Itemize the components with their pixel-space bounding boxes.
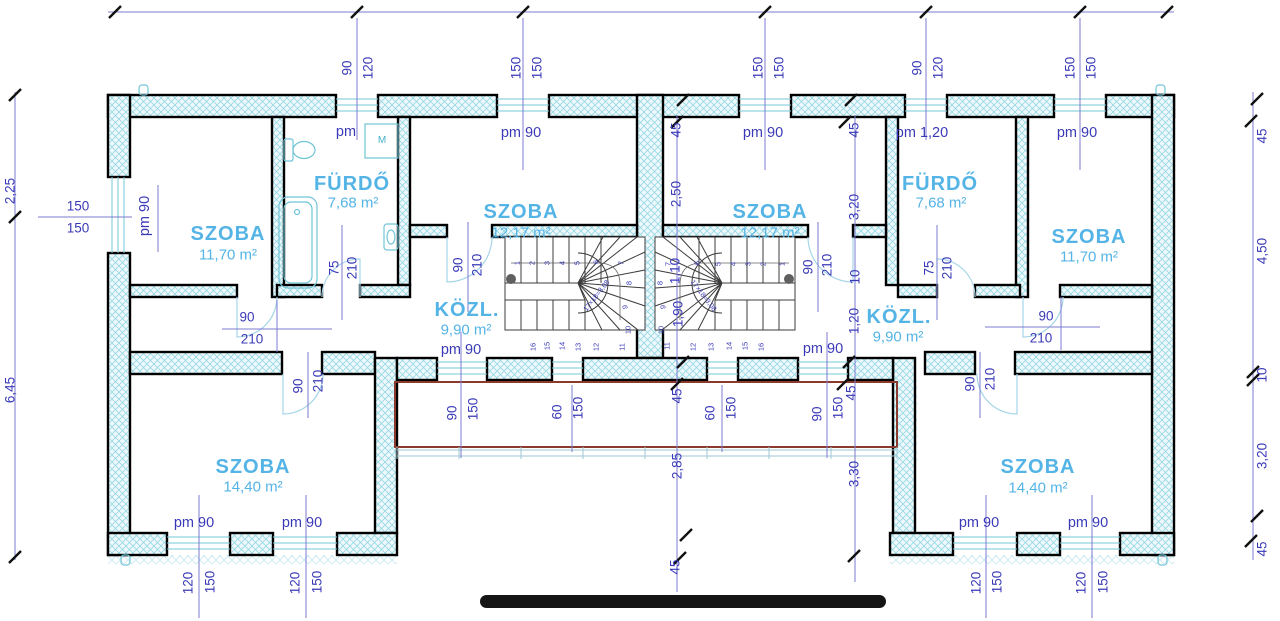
redaction-bar (480, 595, 886, 608)
toilet-tank (284, 139, 293, 161)
stairs-left (505, 237, 645, 330)
floor-plan-page: 9012015015015015090120150150pmpm 90pm 90… (0, 0, 1280, 621)
washing-machine (365, 124, 398, 158)
terrace (395, 382, 897, 459)
toilet-bowl (293, 142, 315, 159)
floor-plan-drawing (0, 0, 1280, 621)
washbasin (384, 224, 398, 250)
stairs-right (655, 237, 795, 330)
